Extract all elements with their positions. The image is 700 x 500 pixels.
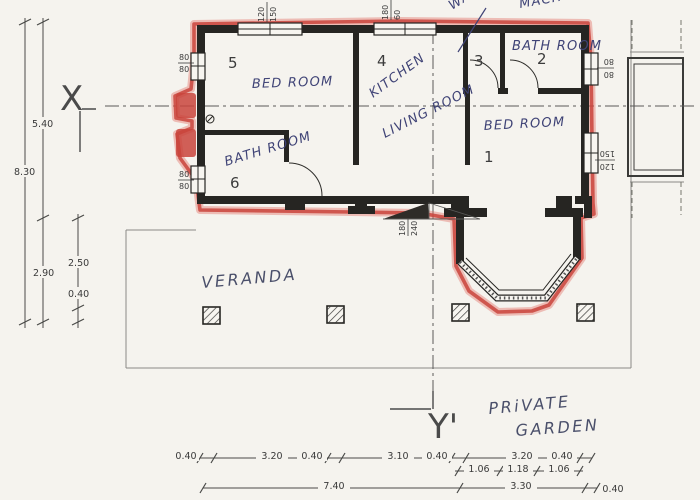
wall-room3-room2 <box>500 33 505 88</box>
porch-outer <box>628 58 683 176</box>
dim-5-40: 5.40 <box>32 119 53 130</box>
label-window-top-mid: 180 60 <box>381 0 402 20</box>
win-dim-text: 150 <box>600 149 615 158</box>
wall-room6-top <box>204 130 288 135</box>
y-axis-label: Y' <box>427 407 458 447</box>
private-garden-label-1: PRiVATE <box>488 392 572 418</box>
dim-b2-3: 1.06 <box>548 464 569 475</box>
washing-machine-label-2: MACH <box>518 0 564 12</box>
dim-2-90: 2.90 <box>33 268 54 279</box>
win-dim-text: 80 <box>179 170 189 179</box>
label-window-right-top: 80 80 <box>597 57 614 79</box>
pillar-cap <box>348 206 375 214</box>
win-dim-text: 180 <box>398 221 407 236</box>
room4-number: 4 <box>377 52 387 70</box>
private-garden-label-2: GARDEN <box>515 415 600 440</box>
dim-b1-1: 0.40 <box>175 451 196 462</box>
dim-b1-2: 3.20 <box>261 451 282 462</box>
washing-machine-label-1: WASH <box>446 0 491 13</box>
red-chimney-bump-top <box>176 93 196 118</box>
hatched-post <box>452 304 469 321</box>
win-dim-text: 60 <box>393 10 402 20</box>
bay-right-wall <box>573 214 581 260</box>
door-arc-room6 <box>289 163 322 196</box>
pillar-stem <box>451 196 469 210</box>
win-dim-text: 80 <box>179 65 189 74</box>
wall-corner-step <box>584 196 592 218</box>
side-porch <box>628 20 684 218</box>
win-dim-text: 120 <box>257 7 266 22</box>
win-dim-text: 120 <box>600 162 615 171</box>
dim-2-50: 2.50 <box>68 258 89 269</box>
dim-b1-5: 0.40 <box>426 451 447 462</box>
pillar-cap <box>285 203 305 210</box>
left-dimension-lines: 5.40 8.30 2.90 2.50 0.40 <box>12 18 94 328</box>
pillar-stem <box>556 196 572 210</box>
win-dim-text: 80 <box>179 182 189 191</box>
bay-left-wall <box>456 214 464 264</box>
window-left-bottom <box>191 166 205 193</box>
room5-label: BED ROOM <box>252 74 334 92</box>
window-right-bottom <box>584 133 598 173</box>
win-dim-text: 80 <box>179 53 189 62</box>
wall-bottom-left <box>197 196 463 204</box>
living-room-label: LIVING ROOM <box>380 82 477 142</box>
room1-number: 1 <box>484 148 494 166</box>
dim-b1-4: 3.10 <box>387 451 408 462</box>
porch-dashed-lines <box>632 20 681 218</box>
hatched-post <box>577 304 594 321</box>
dim-0-40: 0.40 <box>68 289 89 300</box>
dim-b3-1: 7.40 <box>323 481 344 492</box>
window-right-top <box>584 53 598 85</box>
hatched-post <box>203 307 220 324</box>
floor-plan-drawing: X Y' <box>0 0 700 500</box>
x-axis-label: X <box>60 79 83 119</box>
room2-label: BATH ROOM <box>512 39 602 54</box>
dim-b1-6: 3.20 <box>511 451 532 462</box>
dim-b1-3: 0.40 <box>301 451 322 462</box>
dim-b2-2: 1.18 <box>507 464 528 475</box>
win-dim-text: 80 <box>604 70 614 79</box>
door-arc-room2 <box>510 60 538 88</box>
room4-label: KITCHEN <box>367 51 429 102</box>
wall-room1-left <box>465 94 470 165</box>
window-top-mid <box>374 23 436 35</box>
dim-b3-3: 0.40 <box>602 484 623 495</box>
dim-b2-1: 1.06 <box>468 464 489 475</box>
room1-label: BED ROOM <box>483 115 565 134</box>
label-entrance-dim: 180 240 <box>398 217 419 236</box>
window-top-left <box>238 23 302 35</box>
hatched-post <box>327 306 344 323</box>
room3-number: 3 <box>474 52 484 70</box>
win-dim-text: 80 <box>604 57 614 66</box>
fixture-symbol-line <box>207 116 213 122</box>
dim-8-30: 8.30 <box>14 167 35 178</box>
wall-hall-seg2 <box>498 88 508 94</box>
y-axis-bracket <box>390 391 433 409</box>
wall-room5-kitchen <box>353 33 359 165</box>
win-dim-text: 150 <box>269 7 278 22</box>
dim-b1-7: 0.40 <box>551 451 572 462</box>
wall-hall-seg3 <box>538 88 581 94</box>
room5-number: 5 <box>228 54 238 72</box>
room6-label: BATH ROOM <box>223 129 314 170</box>
porch-inner <box>634 64 683 170</box>
veranda-label: VERANDA <box>201 265 298 292</box>
win-dim-text: 180 <box>381 5 390 20</box>
win-dim-text: 240 <box>410 221 419 236</box>
room6-number: 6 <box>230 174 240 192</box>
bottom-dimension-rows: 0.40 3.20 0.40 3.10 0.40 3.20 0.40 1.06 … <box>171 449 624 495</box>
dim-b3-2: 3.30 <box>510 481 531 492</box>
window-left-top <box>191 53 205 80</box>
red-chimney-bump-bottom <box>176 129 196 157</box>
floor-plan-scan: X Y' <box>0 0 700 500</box>
